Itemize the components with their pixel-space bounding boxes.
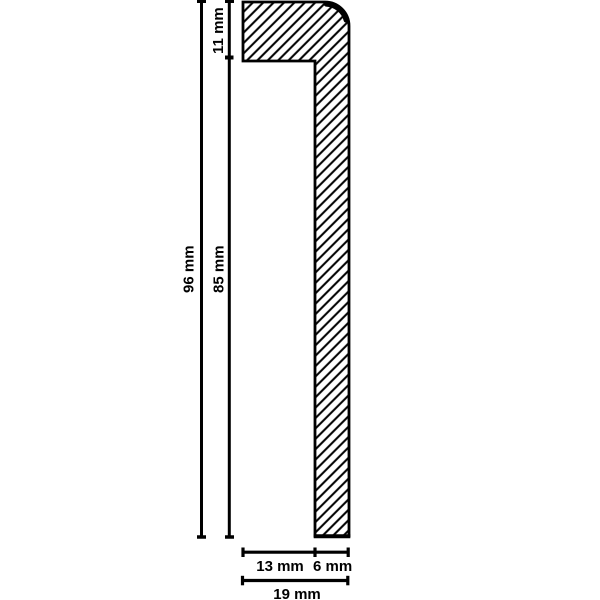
svg-text:6 mm: 6 mm	[313, 558, 352, 575]
svg-text:96 mm: 96 mm	[181, 245, 198, 293]
svg-text:11 mm: 11 mm	[210, 7, 227, 54]
svg-text:85 mm: 85 mm	[211, 245, 228, 293]
svg-text:13 mm: 13 mm	[256, 558, 304, 575]
svg-text:19 mm: 19 mm	[273, 586, 321, 600]
